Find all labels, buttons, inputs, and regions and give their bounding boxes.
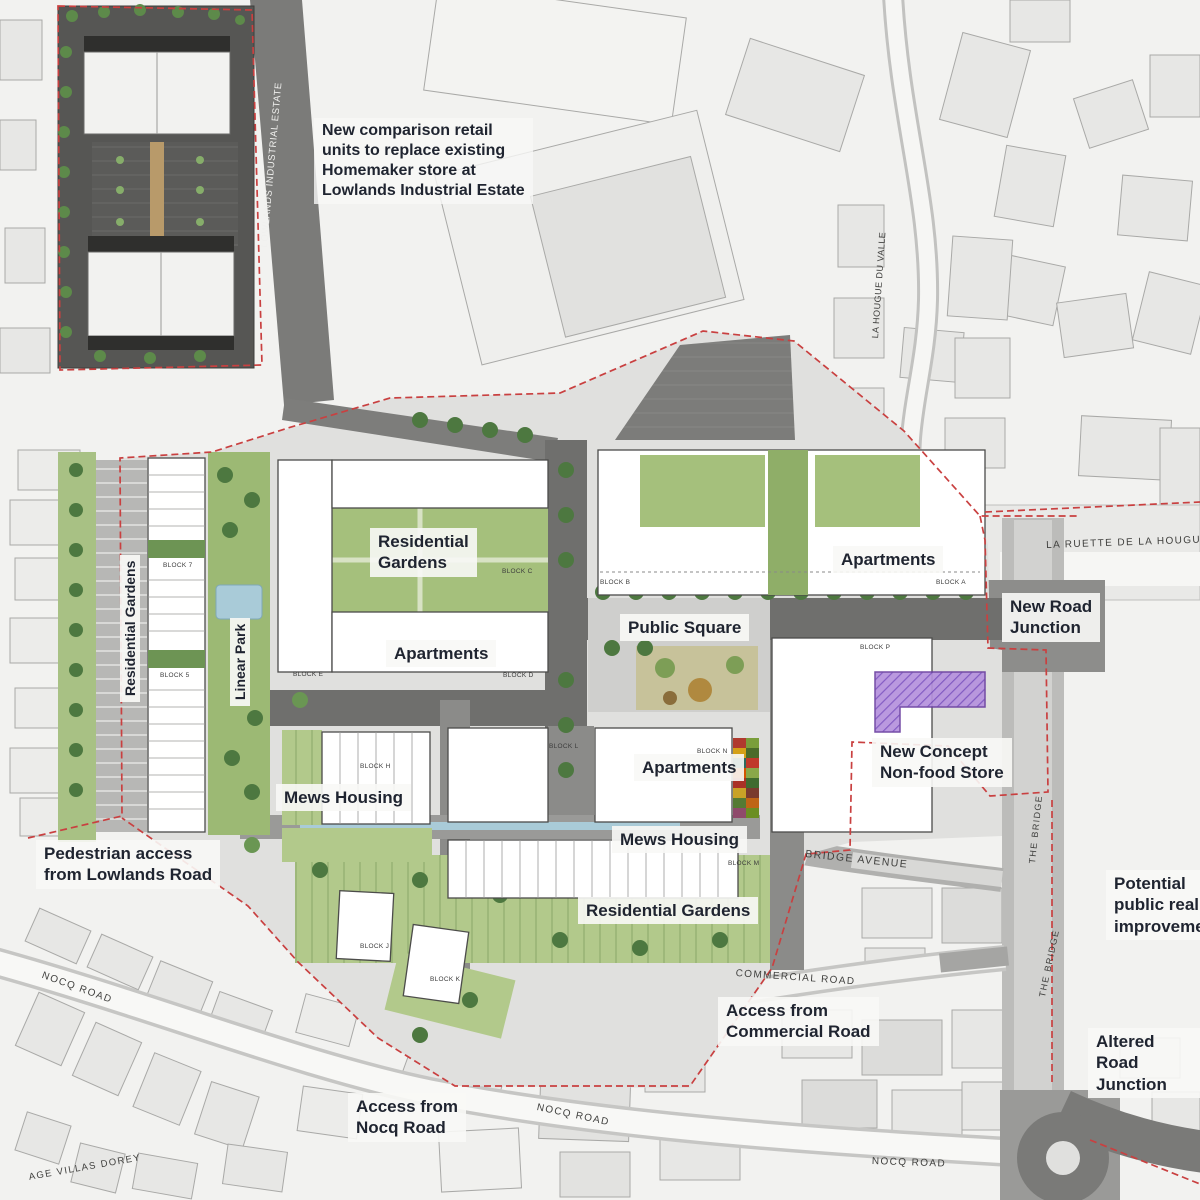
industrial-estate — [58, 4, 254, 368]
note-access-commercial: Access from Commercial Road — [718, 997, 879, 1046]
block-label-c: BLOCK C — [502, 568, 533, 575]
block-label-k: BLOCK K — [430, 976, 460, 983]
label-apartments-block-n: Apartments — [634, 754, 744, 781]
label-linear-park: Linear Park — [230, 618, 250, 706]
label-residential-gardens-west: Residential Gardens — [120, 555, 140, 702]
block-label-l: BLOCK L — [549, 743, 579, 750]
block-label-e: BLOCK E — [293, 671, 323, 678]
label-mews-housing-west: Mews Housing — [276, 784, 411, 811]
block-label-m: BLOCK M — [728, 860, 759, 867]
label-residential-gardens-south: Residential Gardens — [578, 897, 758, 924]
note-pedestrian-access: Pedestrian access from Lowlands Road — [36, 840, 220, 889]
masterplan-canvas: New comparison retail units to replace e… — [0, 0, 1200, 1200]
block-label-h: BLOCK H — [360, 763, 391, 770]
block-label-p: BLOCK P — [860, 644, 890, 651]
block-label-j: BLOCK J — [360, 943, 389, 950]
block-label-d: BLOCK D — [503, 672, 534, 679]
label-residential-gardens-block-c: Residential Gardens — [370, 528, 477, 577]
block-label-7: BLOCK 7 — [163, 562, 193, 569]
label-new-road-junction: New Road Junction — [1002, 593, 1100, 642]
label-new-concept-store: New Concept Non-food Store — [872, 738, 1012, 787]
label-apartments-block-d: Apartments — [386, 640, 496, 667]
note-altered-junction: Altered Road Junction — [1088, 1028, 1200, 1098]
note-access-nocq: Access from Nocq Road — [348, 1093, 466, 1142]
label-apartments-north-east: Apartments — [833, 546, 943, 573]
note-retail-units: New comparison retail units to replace e… — [314, 118, 533, 204]
note-public-realm: Potential public realm improvement — [1106, 870, 1200, 940]
block-label-b: BLOCK B — [600, 579, 630, 586]
label-public-square: Public Square — [620, 614, 749, 641]
label-mews-housing-south: Mews Housing — [612, 826, 747, 853]
block-label-5: BLOCK 5 — [160, 672, 190, 679]
block-label-a: BLOCK A — [936, 579, 966, 586]
